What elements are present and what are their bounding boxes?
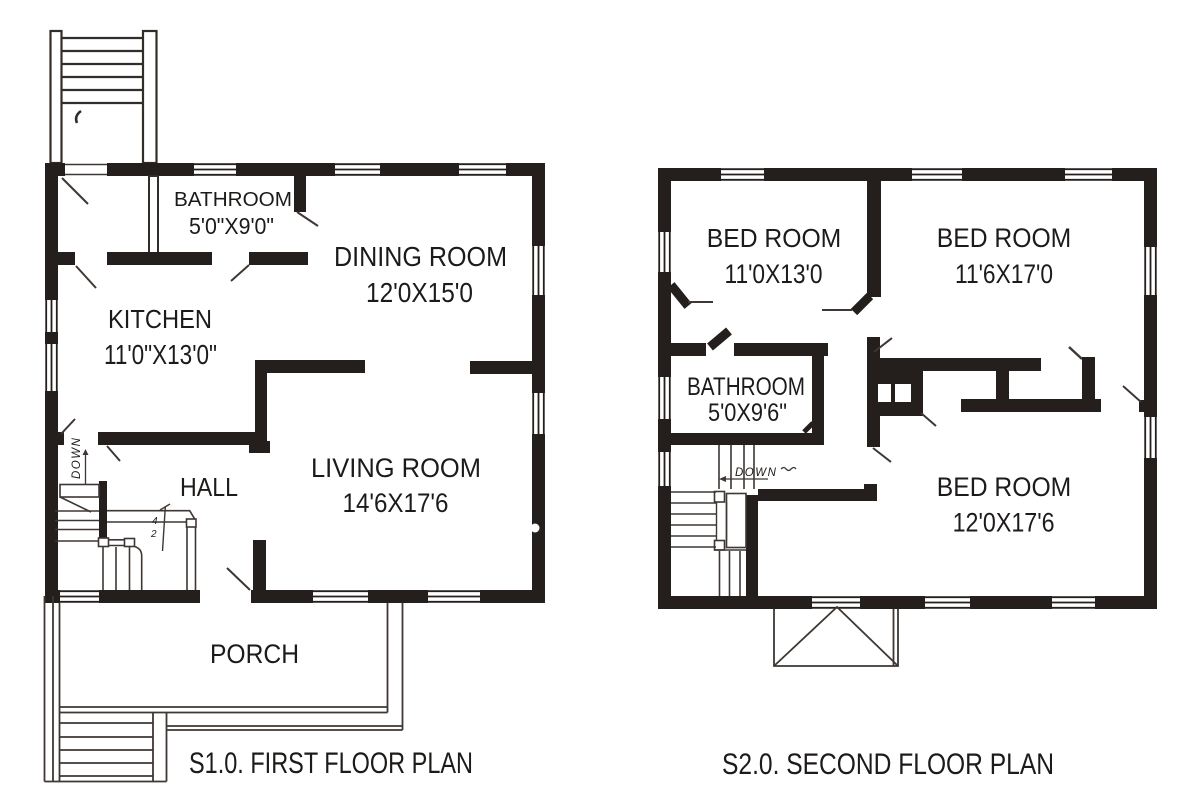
svg-text:PORCH: PORCH bbox=[210, 639, 299, 669]
svg-text:5'0X9'6": 5'0X9'6" bbox=[708, 400, 787, 427]
svg-text:DOWN: DOWN bbox=[735, 467, 777, 479]
svg-text:DOWN: DOWN bbox=[71, 437, 83, 479]
svg-text:BATHROOM: BATHROOM bbox=[687, 374, 805, 401]
svg-text:BED ROOM: BED ROOM bbox=[937, 222, 1072, 253]
svg-text:12'0X17'6: 12'0X17'6 bbox=[953, 507, 1055, 538]
svg-text:HALL: HALL bbox=[180, 472, 238, 502]
svg-text:S2.0. SECOND FLOOR PLAN: S2.0. SECOND FLOOR PLAN bbox=[722, 748, 1054, 781]
svg-text:KITCHEN: KITCHEN bbox=[108, 306, 212, 334]
svg-text:11'0X13'0: 11'0X13'0 bbox=[725, 258, 823, 289]
svg-text:DINING ROOM: DINING ROOM bbox=[334, 241, 507, 272]
svg-text:11'6X17'0: 11'6X17'0 bbox=[955, 258, 1053, 289]
svg-text:BATHROOM: BATHROOM bbox=[174, 189, 292, 211]
svg-text:5'0"X9'0": 5'0"X9'0" bbox=[189, 213, 274, 239]
svg-text:11'0"X13'0": 11'0"X13'0" bbox=[104, 339, 217, 370]
svg-text:12'0X15'0: 12'0X15'0 bbox=[366, 277, 473, 308]
svg-text:S1.0. FIRST FLOOR PLAN: S1.0. FIRST FLOOR PLAN bbox=[189, 748, 473, 780]
svg-text:LIVING ROOM: LIVING ROOM bbox=[311, 453, 481, 483]
svg-text:BED ROOM: BED ROOM bbox=[707, 223, 842, 253]
svg-text:14'6X17'6: 14'6X17'6 bbox=[343, 488, 449, 518]
svg-text:BED ROOM: BED ROOM bbox=[937, 471, 1072, 502]
svg-text:2: 2 bbox=[150, 529, 157, 540]
svg-text:4: 4 bbox=[152, 516, 158, 527]
